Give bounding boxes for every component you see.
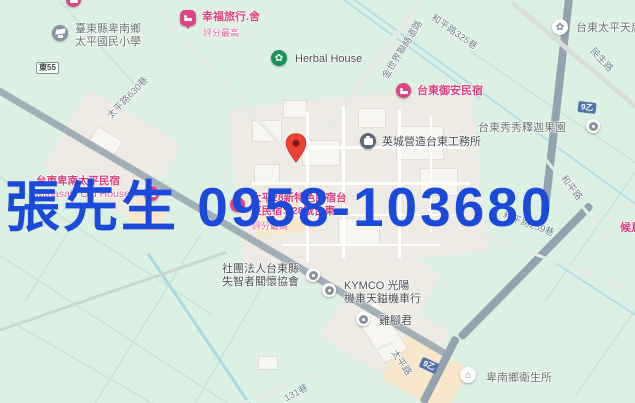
chicken-feet-label[interactable]: 雞腳君 — [379, 315, 412, 328]
road-label-heping325: 和平路325巷 — [429, 10, 481, 52]
waterway — [539, 252, 635, 330]
xiuxiu-orchard-label[interactable]: 台東秀秀釋迦果園 — [478, 122, 566, 135]
route-shield-9b-top: 9乙 — [577, 101, 597, 114]
temple-icon[interactable]: ✿ — [552, 19, 568, 35]
kymco-label[interactable]: KYMCO 光陽 機車天鎰機車行 — [344, 280, 421, 306]
lodging-pin-icon[interactable] — [180, 10, 196, 26]
road-label-heping: 和平路 — [558, 171, 587, 202]
parcel-line — [574, 264, 635, 396]
house-icon: ⌂ — [465, 370, 471, 381]
health-center-icon[interactable]: ⌂ — [460, 367, 476, 383]
motorcycle-shop-icon[interactable] — [322, 283, 336, 297]
orchard-icon[interactable] — [586, 119, 600, 133]
flower-icon: ✿ — [556, 22, 564, 33]
map-pin[interactable] — [285, 133, 307, 163]
parcel-line — [94, 233, 201, 403]
lodging-icon[interactable] — [396, 83, 411, 98]
partial-right-label[interactable]: 候鳥 — [620, 222, 635, 235]
street — [282, 244, 440, 246]
route-shield-dong55: 東55 — [36, 62, 59, 74]
school-icon[interactable] — [52, 25, 68, 41]
map-canvas[interactable]: 臺東縣卑南鄉 太平國民小學 幸福旅行.舍 評分最高 ✿ Herbal House… — [0, 0, 635, 403]
happiness-inn-label[interactable]: 幸福旅行.舍 — [202, 11, 260, 24]
temple-label[interactable]: 台東太平天后宮 — [576, 22, 635, 35]
lodging-icon-partial[interactable] — [66, 0, 81, 7]
building — [258, 356, 278, 370]
building — [358, 108, 386, 128]
building — [283, 100, 307, 118]
office-icon[interactable] — [360, 133, 376, 149]
parcel-line — [10, 320, 374, 403]
road-minsheng — [510, 1, 635, 117]
happiness-inn-rating: 評分最高 — [203, 26, 239, 39]
herbal-house-icon[interactable]: ✿ — [271, 50, 287, 66]
dementia-assoc-label[interactable]: 社團法人台東縣 失智者關懷協會 — [222, 263, 299, 289]
herbal-house-label[interactable]: Herbal House — [295, 53, 362, 66]
bed-icon — [180, 10, 196, 26]
flower-icon: ✿ — [275, 53, 283, 64]
association-icon[interactable] — [306, 268, 320, 282]
yuan-guesthouse-label[interactable]: 台東御安民宿 — [417, 85, 483, 98]
yingcheng-office-label[interactable]: 英城營造台東工務所 — [382, 136, 481, 149]
road-lane131 — [234, 341, 393, 403]
restaurant-icon[interactable] — [356, 312, 370, 326]
health-center-label[interactable]: 卑南鄉衛生所 — [486, 372, 552, 385]
contact-overlay-text: 張先生 0958-103680 — [5, 162, 554, 242]
school-label[interactable]: 臺東縣卑南鄉 太平國民小學 — [75, 23, 141, 49]
